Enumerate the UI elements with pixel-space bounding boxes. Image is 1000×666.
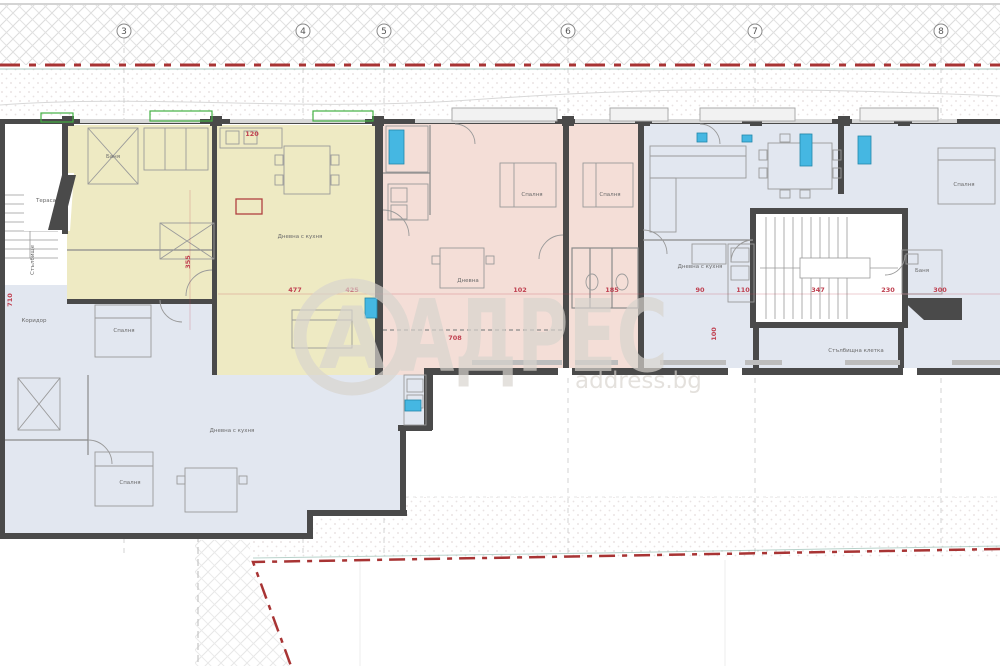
watermark: A АДРЕС address.bg: [300, 278, 702, 395]
grid-bubble-label: 3: [121, 27, 127, 37]
parapet: [610, 108, 668, 121]
room-label: Дневна с кухня: [278, 234, 323, 240]
grid-bubble-8: 8: [934, 24, 948, 38]
railing: [952, 360, 1000, 365]
dimension-label: 300: [933, 286, 947, 294]
grid-bubble-7: 7: [748, 24, 762, 38]
grid-bubble-label: 6: [565, 27, 571, 37]
bathtub-icon: [858, 136, 871, 164]
grid-bubble-label: 5: [381, 27, 387, 37]
stair-landing: [800, 258, 870, 278]
grid-bubble-5: 5: [377, 24, 391, 38]
room-label: Коридор: [22, 318, 48, 324]
sink-icon: [405, 400, 421, 411]
parapet: [452, 108, 557, 121]
dimension-label: 477: [288, 286, 302, 294]
dimension-label: 110: [736, 286, 750, 294]
slope-hatch-wedge: [195, 540, 292, 666]
grid-bubble-label: 8: [938, 27, 944, 37]
room-label: Дневна с кухня: [678, 264, 723, 270]
bathtub-icon: [800, 134, 812, 166]
dimension-label: 100: [710, 327, 718, 341]
wall-wing-step-2: [307, 510, 407, 516]
floor-plan-page: 3 4 5 6 7 8: [0, 0, 1000, 666]
floor-plan-canvas: 3 4 5 6 7 8: [0, 0, 1000, 666]
room-label: Спалня: [953, 182, 974, 188]
bathtub-icon: [389, 130, 404, 164]
dimension-label: 710: [6, 293, 14, 307]
sink-icon: [697, 133, 707, 142]
wall-stair-east: [62, 119, 68, 234]
room-label: Тераса: [35, 198, 56, 204]
room-label: Баня: [106, 154, 120, 160]
dimension-label: 230: [881, 286, 895, 294]
railing: [745, 360, 782, 365]
parapet: [860, 108, 938, 121]
dimension-label: 347: [811, 286, 825, 294]
dimension-label: 90: [695, 286, 705, 294]
grid-bubble-4: 4: [296, 24, 310, 38]
grid-bubble-3: 3: [117, 24, 131, 38]
dimension-label: 355: [184, 255, 192, 269]
wall-yellow-mid: [212, 125, 217, 375]
room-label: Спалня: [599, 192, 620, 198]
grid-bubble-label: 7: [752, 27, 758, 37]
wall-yellow-south: [67, 299, 217, 304]
stair-core-right: [753, 211, 905, 325]
railing: [660, 360, 726, 365]
room-label: Стълбище: [30, 244, 36, 275]
room-label: Спалня: [113, 328, 134, 334]
room-label: Дневна с кухня: [210, 428, 255, 434]
dimension-label: 120: [245, 130, 259, 138]
wall-wing-left: [0, 285, 5, 539]
railing: [845, 360, 900, 365]
wall-wing-east-2: [400, 427, 406, 516]
wall-left: [0, 119, 5, 309]
wall-wing-south: [0, 533, 313, 539]
brand-website-text: address.bg: [575, 368, 702, 394]
room-label: Спалня: [119, 480, 140, 486]
street-hatch-strip: [0, 5, 1000, 65]
parapet: [700, 108, 795, 121]
room-label: Стълбищна клетка: [828, 348, 883, 354]
sink-icon: [742, 135, 752, 142]
room-label: Баня: [915, 268, 929, 274]
red-boundary-bottom: [253, 549, 1000, 666]
grid-bubble-6: 6: [561, 24, 575, 38]
grid-bubble-label: 4: [300, 27, 306, 37]
room-label: Спалня: [521, 192, 542, 198]
brand-logo-letter: A: [319, 289, 386, 389]
